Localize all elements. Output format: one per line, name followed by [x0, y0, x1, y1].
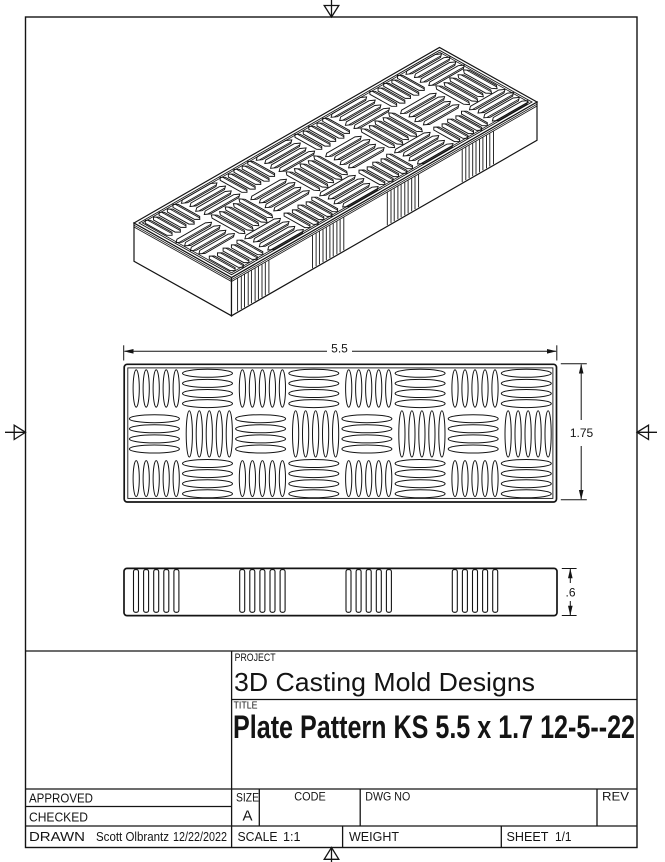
svg-text:A: A [243, 808, 253, 825]
svg-text:12/22/2022: 12/22/2022 [173, 829, 227, 844]
svg-text:SHEET: SHEET [507, 829, 549, 844]
svg-text:SIZE: SIZE [236, 791, 259, 805]
svg-text:.6: .6 [565, 586, 575, 600]
svg-text:1.75: 1.75 [570, 426, 594, 440]
svg-text:DRAWN: DRAWN [29, 829, 85, 844]
svg-text:WEIGHT: WEIGHT [349, 829, 399, 844]
svg-text:REV: REV [602, 790, 629, 804]
svg-text:3D Casting Mold Designs: 3D Casting Mold Designs [234, 667, 535, 697]
svg-text:CODE: CODE [294, 790, 325, 804]
svg-text:Plate Pattern KS 5.5 x 1.7 12-: Plate Pattern KS 5.5 x 1.7 12-5--22 [233, 709, 635, 745]
svg-text:1/1: 1/1 [555, 829, 572, 844]
svg-text:1:1: 1:1 [283, 829, 301, 844]
svg-text:5.5: 5.5 [331, 342, 348, 356]
svg-text:PROJECT: PROJECT [235, 652, 276, 664]
svg-text:SCALE: SCALE [238, 829, 278, 844]
svg-text:CHECKED: CHECKED [29, 810, 88, 825]
svg-text:Scott Olbrantz: Scott Olbrantz [96, 829, 169, 844]
svg-text:DWG NO: DWG NO [365, 790, 410, 804]
svg-text:APPROVED: APPROVED [29, 791, 93, 806]
